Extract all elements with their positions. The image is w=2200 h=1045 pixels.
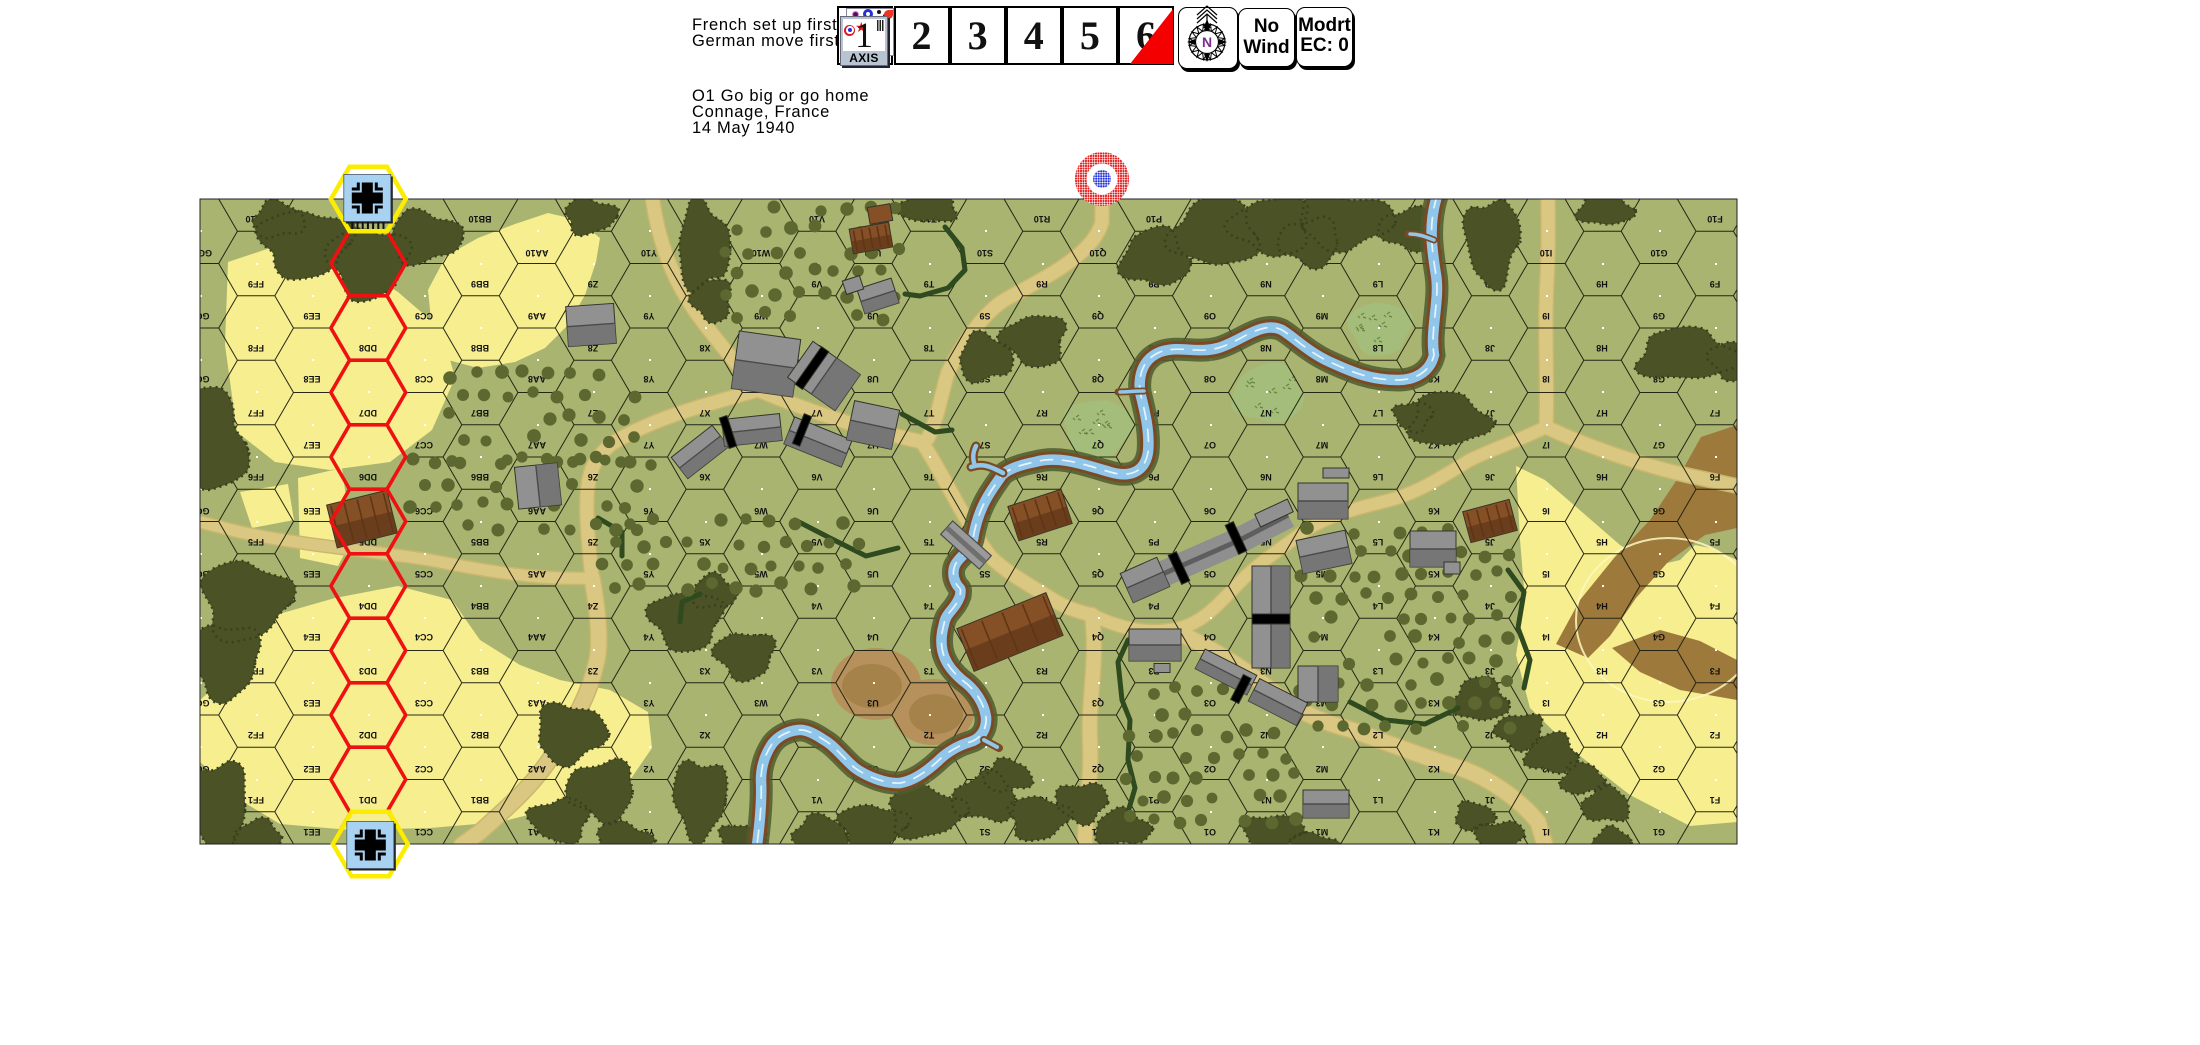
svg-text:U5: U5 [867, 569, 879, 579]
svg-text:Y10: Y10 [641, 248, 657, 258]
svg-text:G3: G3 [1653, 698, 1665, 708]
svg-text:Q5: Q5 [1092, 569, 1104, 579]
svg-text:CC4: CC4 [415, 632, 433, 642]
svg-text:T8: T8 [924, 343, 935, 353]
svg-text:CC1: CC1 [415, 827, 433, 837]
svg-text:V7: V7 [811, 408, 822, 418]
svg-text:Y8: Y8 [643, 374, 654, 384]
svg-text:FF1: FF1 [248, 795, 264, 805]
svg-text:Y5: Y5 [643, 569, 654, 579]
svg-text:Z3: Z3 [588, 666, 599, 676]
svg-text:EE5: EE5 [303, 569, 320, 579]
svg-text:O8: O8 [1204, 374, 1216, 384]
svg-text:K3: K3 [1428, 698, 1440, 708]
svg-text:O6: O6 [1204, 506, 1216, 516]
svg-text:I5: I5 [1542, 569, 1550, 579]
svg-text:H8: H8 [1596, 343, 1608, 353]
svg-text:F1: F1 [1710, 795, 1721, 805]
svg-text:FF5: FF5 [248, 537, 264, 547]
svg-text:L4: L4 [1373, 601, 1384, 611]
svg-text:W3: W3 [754, 698, 768, 708]
svg-text:R2: R2 [1036, 730, 1048, 740]
svg-text:M8: M8 [1316, 374, 1329, 384]
svg-text:T5: T5 [924, 537, 935, 547]
svg-text:Q2: Q2 [1092, 764, 1104, 774]
svg-text:J3: J3 [1485, 666, 1495, 676]
svg-text:BB7: BB7 [471, 408, 489, 418]
svg-text:L7: L7 [1373, 408, 1384, 418]
svg-text:EE6: EE6 [303, 506, 320, 516]
svg-text:O5: O5 [1204, 569, 1216, 579]
svg-text:P4: P4 [1148, 601, 1159, 611]
svg-text:I8: I8 [1542, 374, 1550, 384]
svg-text:Y7: Y7 [643, 440, 654, 450]
svg-text:J1: J1 [1485, 795, 1495, 805]
svg-text:EE8: EE8 [303, 374, 320, 384]
svg-text:K6: K6 [1428, 506, 1440, 516]
svg-text:EE2: EE2 [303, 764, 320, 774]
svg-text:BB5: BB5 [471, 537, 489, 547]
svg-text:I7: I7 [1542, 440, 1550, 450]
svg-text:I1: I1 [1542, 827, 1550, 837]
svg-text:I3: I3 [1542, 698, 1550, 708]
svg-text:F4: F4 [1710, 601, 1721, 611]
svg-text:H3: H3 [1596, 666, 1608, 676]
svg-text:S5: S5 [979, 569, 990, 579]
svg-text:DD2: DD2 [359, 730, 377, 740]
svg-text:CC6: CC6 [415, 506, 433, 516]
svg-text:H5: H5 [1596, 537, 1608, 547]
svg-text:EE3: EE3 [303, 698, 320, 708]
svg-text:CC8: CC8 [415, 374, 433, 384]
svg-text:O4: O4 [1204, 632, 1216, 642]
svg-text:EE7: EE7 [303, 440, 320, 450]
svg-text:S1: S1 [979, 827, 990, 837]
svg-text:X2: X2 [699, 730, 710, 740]
svg-text:M9: M9 [1316, 311, 1329, 321]
svg-text:G4: G4 [1653, 632, 1665, 642]
svg-text:EE9: EE9 [303, 311, 320, 321]
svg-text:EE4: EE4 [303, 632, 320, 642]
svg-text:DD4: DD4 [359, 601, 377, 611]
svg-text:AA4: AA4 [528, 632, 546, 642]
svg-text:Z4: Z4 [588, 601, 599, 611]
svg-text:N8: N8 [1260, 343, 1272, 353]
svg-text:U8: U8 [867, 374, 879, 384]
svg-text:FF9: FF9 [248, 279, 264, 289]
svg-text:G9: G9 [1653, 311, 1665, 321]
svg-text:X5: X5 [699, 537, 710, 547]
svg-text:O3: O3 [1204, 698, 1216, 708]
svg-text:O7: O7 [1204, 440, 1216, 450]
svg-text:T3: T3 [924, 666, 935, 676]
svg-text:X7: X7 [699, 408, 710, 418]
svg-text:BB10: BB10 [468, 214, 491, 224]
svg-text:H4: H4 [1596, 601, 1608, 611]
svg-text:CC3: CC3 [415, 698, 433, 708]
svg-text:Q10: Q10 [1089, 248, 1106, 258]
svg-text:K5: K5 [1428, 569, 1440, 579]
svg-text:W6: W6 [754, 506, 768, 516]
svg-text:U3: U3 [867, 698, 879, 708]
svg-text:AA5: AA5 [528, 569, 546, 579]
svg-text:J6: J6 [1485, 472, 1495, 482]
svg-text:K1: K1 [1428, 827, 1440, 837]
svg-text:S7: S7 [979, 440, 990, 450]
svg-text:CC9: CC9 [415, 311, 433, 321]
svg-text:K4: K4 [1428, 632, 1440, 642]
svg-text:F9: F9 [1710, 279, 1721, 289]
svg-text:V3: V3 [811, 666, 822, 676]
svg-text:R7: R7 [1036, 408, 1048, 418]
svg-text:M7: M7 [1316, 440, 1329, 450]
svg-text:EE1: EE1 [303, 827, 320, 837]
svg-text:BB9: BB9 [471, 279, 489, 289]
svg-text:H7: H7 [1596, 408, 1608, 418]
svg-text:DD6: DD6 [359, 472, 377, 482]
svg-text:J8: J8 [1485, 343, 1495, 353]
svg-text:Z6: Z6 [588, 472, 599, 482]
svg-text:G7: G7 [1653, 440, 1665, 450]
svg-text:BB3: BB3 [471, 666, 489, 676]
svg-text:Y4: Y4 [643, 632, 654, 642]
svg-text:BB6: BB6 [471, 472, 489, 482]
svg-text:FF8: FF8 [248, 343, 264, 353]
svg-text:V9: V9 [811, 279, 822, 289]
svg-text:I10: I10 [1540, 248, 1553, 258]
svg-text:P10: P10 [1146, 214, 1162, 224]
svg-text:Z9: Z9 [588, 279, 599, 289]
svg-text:X3: X3 [699, 666, 710, 676]
svg-text:F5: F5 [1710, 537, 1721, 547]
svg-text:T9: T9 [924, 279, 935, 289]
svg-text:BB8: BB8 [471, 343, 489, 353]
svg-text:I9: I9 [1542, 311, 1550, 321]
svg-text:L3: L3 [1373, 666, 1384, 676]
svg-text:I4: I4 [1542, 632, 1550, 642]
svg-text:G2: G2 [1653, 764, 1665, 774]
svg-text:O2: O2 [1204, 764, 1216, 774]
svg-text:U4: U4 [867, 632, 879, 642]
svg-text:BB1: BB1 [471, 795, 489, 805]
svg-text:H6: H6 [1596, 472, 1608, 482]
svg-text:Z5: Z5 [588, 537, 599, 547]
svg-text:N9: N9 [1260, 279, 1272, 289]
svg-text:CC7: CC7 [415, 440, 433, 450]
svg-text:DD3: DD3 [359, 666, 377, 676]
svg-text:K2: K2 [1428, 764, 1440, 774]
svg-text:T2: T2 [924, 730, 935, 740]
svg-text:U6: U6 [867, 506, 879, 516]
svg-text:Q7: Q7 [1092, 440, 1104, 450]
svg-text:Q3: Q3 [1092, 698, 1104, 708]
svg-text:L5: L5 [1373, 537, 1384, 547]
svg-text:AA2: AA2 [528, 764, 546, 774]
svg-text:G6: G6 [1653, 506, 1665, 516]
svg-text:W10: W10 [752, 248, 771, 258]
svg-text:G10: G10 [1650, 248, 1667, 258]
svg-text:L2: L2 [1373, 730, 1384, 740]
svg-text:T6: T6 [924, 472, 935, 482]
svg-text:O1: O1 [1204, 827, 1216, 837]
svg-text:R5: R5 [1036, 537, 1048, 547]
svg-text:V5: V5 [811, 537, 822, 547]
svg-text:J4: J4 [1485, 601, 1495, 611]
svg-text:FF7: FF7 [248, 408, 264, 418]
svg-text:Y2: Y2 [643, 764, 654, 774]
svg-text:CC2: CC2 [415, 764, 433, 774]
svg-text:M2: M2 [1316, 764, 1329, 774]
svg-text:R9: R9 [1036, 279, 1048, 289]
svg-text:T7: T7 [924, 408, 935, 418]
svg-text:AA9: AA9 [528, 311, 546, 321]
svg-text:Y9: Y9 [643, 311, 654, 321]
svg-text:DD8: DD8 [359, 343, 377, 353]
svg-text:R10: R10 [1034, 214, 1051, 224]
svg-text:S9: S9 [979, 311, 990, 321]
svg-text:X6: X6 [699, 472, 710, 482]
svg-text:H9: H9 [1596, 279, 1608, 289]
svg-text:N7: N7 [1260, 408, 1272, 418]
svg-text:F2: F2 [1710, 730, 1721, 740]
svg-text:G5: G5 [1653, 569, 1665, 579]
svg-text:CC5: CC5 [415, 569, 433, 579]
svg-text:Y3: Y3 [643, 698, 654, 708]
svg-text:I6: I6 [1542, 506, 1550, 516]
svg-text:S10: S10 [977, 248, 993, 258]
svg-text:FF2: FF2 [248, 730, 264, 740]
svg-text:L8: L8 [1373, 343, 1384, 353]
svg-text:V1: V1 [811, 795, 822, 805]
svg-text:T4: T4 [924, 601, 935, 611]
svg-text:P5: P5 [1148, 537, 1159, 547]
svg-text:V6: V6 [811, 472, 822, 482]
svg-text:DD7: DD7 [359, 408, 377, 418]
svg-text:DD1: DD1 [359, 795, 377, 805]
svg-text:O9: O9 [1204, 311, 1216, 321]
svg-text:F3: F3 [1710, 666, 1721, 676]
svg-text:FF6: FF6 [248, 472, 264, 482]
svg-text:F6: F6 [1710, 472, 1721, 482]
svg-text:Q6: Q6 [1092, 506, 1104, 516]
svg-text:BB2: BB2 [471, 730, 489, 740]
svg-text:H2: H2 [1596, 730, 1608, 740]
svg-text:N: N [1202, 34, 1212, 50]
svg-text:L1: L1 [1373, 795, 1384, 805]
svg-text:Q4: Q4 [1092, 632, 1104, 642]
svg-text:L6: L6 [1373, 472, 1384, 482]
svg-text:R3: R3 [1036, 666, 1048, 676]
svg-text:G1: G1 [1653, 827, 1665, 837]
svg-text:F10: F10 [1707, 214, 1723, 224]
svg-text:N6: N6 [1260, 472, 1272, 482]
svg-text:R6: R6 [1036, 472, 1048, 482]
svg-text:AA10: AA10 [525, 248, 548, 258]
svg-text:V4: V4 [811, 601, 822, 611]
svg-text:Q8: Q8 [1092, 374, 1104, 384]
svg-text:X8: X8 [699, 343, 710, 353]
svg-text:F7: F7 [1710, 408, 1721, 418]
svg-text:BB4: BB4 [471, 601, 489, 611]
svg-text:L9: L9 [1373, 279, 1384, 289]
svg-text:Q9: Q9 [1092, 311, 1104, 321]
